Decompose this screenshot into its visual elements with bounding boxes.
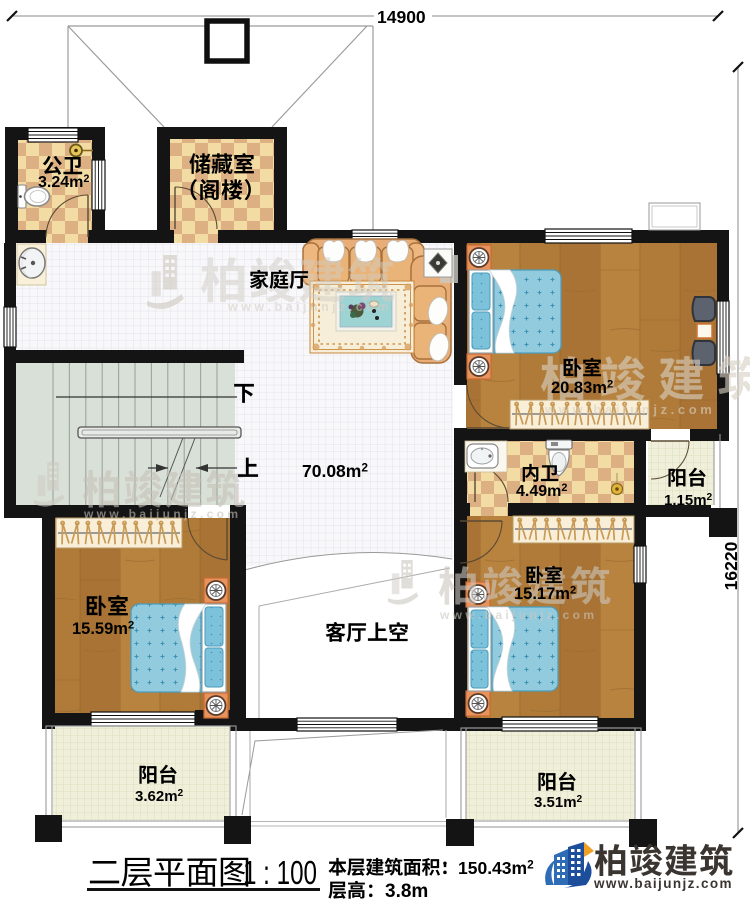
svg-text:70.08m2: 70.08m2 [302,460,368,481]
svg-text:3.62m2: 3.62m2 [135,788,184,805]
svg-text:www.baijunjz.com: www.baijunjz.com [593,876,733,891]
svg-text:w w w . b a i j u n j z . c o: w w w . b a i j u n j z . c o m [439,608,594,622]
svg-text::: : [442,858,448,878]
svg-text:4.49m2: 4.49m2 [516,482,567,500]
svg-text:3.24m2: 3.24m2 [38,173,89,191]
svg-text:15.59m2: 15.59m2 [72,620,134,638]
svg-text:w w w . b a i j u n j z . c o: w w w . b a i j u n j z . c o m [83,507,238,521]
svg-text:w w w . b a i j u n j z . c o: w w w . b a i j u n j z . c o m [227,300,388,314]
svg-text:16220: 16220 [721,541,741,590]
svg-text:1 : 100: 1 : 100 [243,854,317,891]
svg-text:w w w . b a i j u n j z . c o: w w w . b a i j u n j z . c o m [544,402,712,417]
svg-text:3.51m2: 3.51m2 [534,794,583,811]
svg-text:14900: 14900 [377,7,426,27]
svg-text:150.43m2: 150.43m2 [458,857,534,878]
svg-text:1.15m2: 1.15m2 [664,492,713,509]
svg-text:20.83m2: 20.83m2 [551,379,613,397]
svg-text:15.17m2: 15.17m2 [514,585,576,603]
svg-text:3.8m: 3.8m [385,881,428,902]
